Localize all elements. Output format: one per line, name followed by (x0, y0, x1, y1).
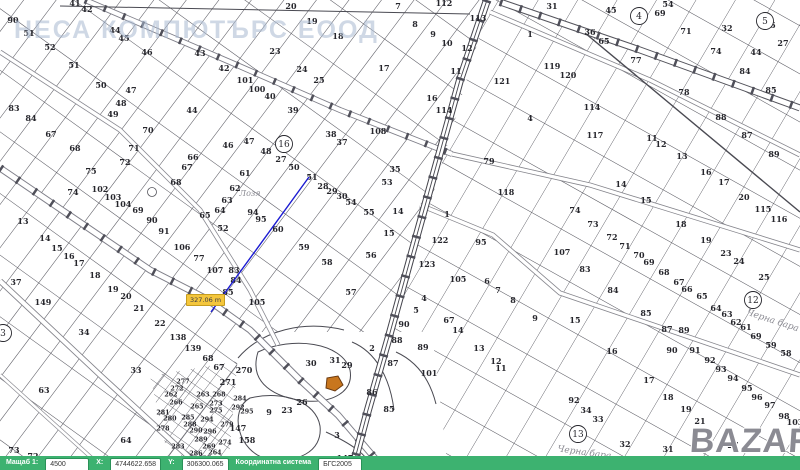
svg-text:15: 15 (640, 195, 651, 205)
svg-text:9: 9 (266, 407, 272, 417)
svg-text:274: 274 (218, 439, 232, 446)
svg-text:31: 31 (662, 444, 673, 454)
svg-text:12: 12 (747, 296, 758, 306)
svg-text:69: 69 (654, 8, 666, 18)
y-coordinate-label: Y: (168, 458, 174, 467)
svg-text:11: 11 (495, 363, 506, 373)
svg-text:47: 47 (243, 136, 254, 146)
svg-text:18: 18 (89, 270, 101, 280)
svg-text:15: 15 (569, 315, 580, 325)
svg-text:273: 273 (209, 400, 222, 407)
svg-text:71: 71 (619, 241, 630, 251)
svg-text:50: 50 (95, 80, 107, 90)
svg-text:67: 67 (181, 162, 192, 172)
crs-label: Координатна система (236, 458, 312, 467)
svg-text:49: 49 (107, 109, 119, 119)
x-coordinate-label: X: (96, 458, 103, 467)
svg-text:19: 19 (306, 16, 318, 26)
svg-text:5: 5 (413, 305, 419, 315)
svg-text:56: 56 (365, 250, 377, 260)
svg-text:20: 20 (120, 291, 132, 301)
svg-text:95: 95 (255, 214, 266, 224)
svg-text:17: 17 (73, 258, 84, 268)
svg-text:29: 29 (341, 360, 353, 370)
svg-text:92: 92 (704, 355, 715, 365)
svg-text:87: 87 (661, 324, 672, 334)
svg-text:14: 14 (452, 325, 464, 335)
svg-text:51: 51 (68, 60, 79, 70)
svg-text:59: 59 (765, 340, 777, 350)
svg-text:7: 7 (395, 1, 401, 11)
svg-text:37: 37 (336, 137, 347, 147)
svg-text:13: 13 (17, 216, 29, 226)
svg-text:68: 68 (202, 353, 214, 363)
svg-text:27: 27 (275, 154, 286, 164)
svg-text:83: 83 (8, 103, 20, 113)
svg-text:13: 13 (473, 343, 485, 353)
svg-text:78: 78 (678, 87, 690, 97)
svg-text:295: 295 (240, 408, 253, 415)
cadastral-map-viewer: 9051525150838441424445464748494342101100… (0, 0, 800, 470)
svg-text:262: 262 (164, 391, 177, 398)
svg-text:87: 87 (741, 130, 752, 140)
svg-text:85: 85 (383, 404, 394, 414)
svg-text:19: 19 (680, 404, 692, 414)
svg-text:37: 37 (10, 277, 21, 287)
svg-text:16: 16 (606, 346, 618, 356)
svg-text:114: 114 (436, 105, 453, 115)
svg-text:65: 65 (199, 210, 210, 220)
svg-text:97: 97 (764, 400, 775, 410)
svg-text:91: 91 (689, 345, 700, 355)
svg-text:100: 100 (249, 84, 266, 94)
svg-text:11: 11 (450, 66, 461, 76)
svg-text:18: 18 (662, 392, 674, 402)
map-canvas[interactable]: 9051525150838441424445464748494342101100… (0, 0, 800, 470)
svg-text:117: 117 (587, 130, 604, 140)
svg-text:4: 4 (527, 113, 533, 123)
svg-text:7: 7 (495, 285, 501, 295)
svg-text:158: 158 (239, 435, 256, 445)
svg-text:30: 30 (305, 358, 317, 368)
svg-text:52: 52 (217, 223, 228, 233)
svg-text:115: 115 (755, 204, 772, 214)
svg-text:44: 44 (750, 47, 762, 57)
svg-text:70: 70 (142, 125, 154, 135)
svg-text:58: 58 (780, 348, 792, 358)
svg-text:65: 65 (696, 291, 707, 301)
svg-text:66: 66 (187, 152, 199, 162)
svg-text:90: 90 (666, 345, 678, 355)
svg-text:118: 118 (498, 187, 515, 197)
svg-text:279: 279 (220, 421, 233, 428)
svg-text:12: 12 (655, 139, 666, 149)
svg-text:69: 69 (132, 205, 144, 215)
svg-text:64: 64 (214, 205, 226, 215)
svg-text:42: 42 (81, 4, 92, 14)
svg-text:50: 50 (288, 162, 300, 172)
svg-text:277: 277 (176, 378, 189, 385)
svg-text:68: 68 (658, 267, 670, 277)
y-coordinate-input[interactable]: 306300.065 (182, 458, 229, 470)
svg-text:114: 114 (584, 102, 601, 112)
svg-text:9: 9 (532, 313, 538, 323)
svg-text:139: 139 (185, 343, 202, 353)
svg-text:88: 88 (715, 112, 727, 122)
svg-text:72: 72 (119, 157, 130, 167)
svg-text:85: 85 (765, 85, 776, 95)
svg-text:71: 71 (128, 143, 139, 153)
svg-text:149: 149 (35, 297, 52, 307)
svg-text:55: 55 (363, 207, 374, 217)
svg-text:33: 33 (130, 365, 142, 375)
svg-text:43: 43 (194, 48, 206, 58)
svg-text:105: 105 (450, 274, 467, 284)
svg-text:23: 23 (281, 405, 293, 415)
svg-text:20: 20 (738, 192, 750, 202)
svg-text:75: 75 (85, 166, 96, 176)
svg-text:35: 35 (389, 164, 400, 174)
svg-text:88: 88 (391, 335, 403, 345)
svg-text:19: 19 (700, 235, 712, 245)
svg-text:67: 67 (213, 362, 224, 372)
svg-text:2: 2 (369, 343, 375, 353)
svg-text:119: 119 (544, 61, 561, 71)
svg-text:64: 64 (710, 303, 722, 313)
svg-text:63: 63 (221, 195, 233, 205)
svg-text:86: 86 (366, 387, 378, 397)
svg-text:107: 107 (207, 265, 224, 275)
svg-text:34: 34 (580, 405, 592, 415)
svg-text:1: 1 (527, 29, 533, 39)
svg-text:13: 13 (676, 151, 688, 161)
svg-text:68: 68 (170, 177, 182, 187)
svg-text:90: 90 (7, 15, 19, 25)
svg-text:20: 20 (285, 1, 297, 11)
svg-text:33: 33 (592, 414, 604, 424)
svg-text:79: 79 (483, 156, 495, 166)
svg-text:92: 92 (568, 395, 579, 405)
svg-text:22: 22 (154, 318, 165, 328)
svg-text:48: 48 (260, 146, 272, 156)
svg-text:123: 123 (419, 259, 436, 269)
svg-text:67: 67 (443, 315, 454, 325)
svg-text:77: 77 (193, 253, 204, 263)
svg-text:10: 10 (441, 38, 453, 48)
svg-text:105: 105 (249, 297, 266, 307)
svg-text:5: 5 (762, 17, 768, 27)
svg-text:84: 84 (739, 66, 751, 76)
svg-text:44: 44 (186, 105, 198, 115)
svg-text:12: 12 (461, 43, 472, 53)
svg-text:116: 116 (771, 214, 788, 224)
svg-text:280: 280 (163, 415, 177, 422)
svg-text:106: 106 (174, 242, 191, 252)
svg-text:23: 23 (720, 248, 732, 258)
svg-text:113: 113 (470, 13, 487, 23)
svg-text:45: 45 (118, 33, 129, 43)
svg-text:31: 31 (329, 355, 340, 365)
svg-text:84: 84 (607, 285, 619, 295)
svg-text:74: 74 (710, 46, 722, 56)
svg-text:25: 25 (313, 75, 324, 85)
svg-text:138: 138 (170, 332, 187, 342)
svg-text:263: 263 (196, 391, 209, 398)
svg-text:77: 77 (630, 55, 641, 65)
svg-text:59: 59 (298, 242, 310, 252)
svg-text:54: 54 (345, 197, 357, 207)
svg-text:24: 24 (733, 256, 745, 266)
svg-text:89: 89 (678, 325, 690, 335)
svg-text:14: 14 (392, 206, 404, 216)
svg-text:15: 15 (51, 243, 62, 253)
measurement-distance-label: 327.06 m (186, 294, 225, 306)
svg-text:84: 84 (25, 113, 37, 123)
svg-text:71: 71 (680, 26, 691, 36)
svg-text:67: 67 (45, 129, 56, 139)
svg-text:66: 66 (681, 284, 693, 294)
svg-text:121: 121 (494, 76, 511, 86)
svg-text:34: 34 (78, 327, 90, 337)
svg-text:93: 93 (715, 364, 727, 374)
svg-text:27: 27 (777, 38, 788, 48)
scale-label: Мащаб 1: (6, 458, 38, 467)
svg-text:3: 3 (334, 430, 340, 440)
svg-text:268: 268 (212, 391, 226, 398)
svg-text:51: 51 (306, 172, 317, 182)
svg-text:90: 90 (146, 215, 158, 225)
map-status-bar: Мащаб 1: 4500 X: 4744622.658 Y: 306300.0… (0, 456, 800, 470)
svg-text:57: 57 (345, 287, 356, 297)
svg-text:275: 275 (209, 407, 222, 414)
svg-text:74: 74 (569, 205, 581, 215)
svg-text:4: 4 (421, 293, 427, 303)
svg-text:14: 14 (615, 179, 627, 189)
svg-text:85: 85 (640, 308, 651, 318)
svg-text:32: 32 (619, 439, 630, 449)
svg-text:46: 46 (141, 47, 153, 57)
svg-text:9: 9 (430, 29, 436, 39)
svg-text:94: 94 (727, 373, 739, 383)
svg-text:289: 289 (194, 436, 207, 443)
svg-text:42: 42 (218, 63, 229, 73)
svg-text:101: 101 (421, 368, 438, 378)
svg-text:23: 23 (269, 46, 281, 56)
svg-text:38: 38 (325, 129, 337, 139)
svg-text:45: 45 (605, 5, 616, 15)
svg-text:91: 91 (158, 226, 169, 236)
svg-text:90: 90 (398, 319, 410, 329)
svg-text:61: 61 (239, 168, 250, 178)
svg-text:15: 15 (383, 228, 394, 238)
svg-text:271: 271 (220, 377, 237, 387)
svg-text:32: 32 (721, 23, 732, 33)
svg-text:284: 284 (233, 395, 247, 402)
svg-text:290: 290 (189, 427, 203, 434)
x-coordinate-input[interactable]: 4744622.658 (110, 458, 161, 470)
svg-text:58: 58 (321, 257, 333, 267)
svg-text:65: 65 (598, 36, 609, 46)
svg-text:120: 120 (560, 70, 577, 80)
svg-text:87: 87 (387, 358, 398, 368)
svg-text:108: 108 (370, 126, 387, 136)
svg-text:1: 1 (444, 209, 450, 219)
svg-text:73: 73 (8, 445, 20, 455)
svg-text:73: 73 (587, 219, 599, 229)
svg-text:16: 16 (426, 93, 438, 103)
svg-text:53: 53 (381, 177, 393, 187)
svg-text:Лозя: Лозя (238, 189, 260, 198)
svg-text:19: 19 (107, 284, 119, 294)
svg-text:270: 270 (236, 365, 253, 375)
svg-text:54: 54 (662, 0, 674, 9)
svg-text:8: 8 (510, 295, 516, 305)
svg-text:278: 278 (156, 425, 170, 432)
svg-text:69: 69 (643, 257, 655, 267)
svg-text:18: 18 (675, 219, 687, 229)
svg-text:21: 21 (133, 303, 144, 313)
svg-text:52: 52 (44, 42, 55, 52)
svg-text:64: 64 (120, 435, 132, 445)
svg-text:31: 31 (546, 1, 557, 11)
svg-text:18: 18 (332, 31, 344, 41)
svg-text:14: 14 (39, 233, 51, 243)
svg-text:6: 6 (484, 276, 490, 286)
svg-text:283: 283 (171, 443, 184, 450)
svg-text:46: 46 (222, 140, 234, 150)
svg-text:47: 47 (125, 85, 136, 95)
svg-text:25: 25 (758, 272, 769, 282)
svg-text:17: 17 (643, 375, 654, 385)
scale-input[interactable]: 4500 (45, 458, 89, 470)
svg-text:26: 26 (296, 397, 308, 407)
svg-text:48: 48 (115, 98, 127, 108)
svg-text:63: 63 (38, 385, 50, 395)
svg-text:89: 89 (768, 149, 780, 159)
svg-text:24: 24 (296, 64, 308, 74)
svg-text:68: 68 (69, 143, 81, 153)
svg-text:294: 294 (200, 416, 214, 423)
svg-text:89: 89 (417, 342, 429, 352)
svg-text:17: 17 (378, 63, 389, 73)
svg-text:74: 74 (67, 187, 79, 197)
svg-text:41: 41 (69, 0, 80, 8)
svg-text:266: 266 (169, 399, 183, 406)
svg-text:96: 96 (751, 392, 763, 402)
svg-text:8: 8 (412, 19, 418, 29)
svg-text:40: 40 (264, 91, 276, 101)
svg-text:122: 122 (432, 235, 449, 245)
svg-text:95: 95 (475, 237, 486, 247)
svg-text:107: 107 (554, 247, 571, 257)
svg-text:51: 51 (23, 28, 34, 38)
crs-select[interactable]: БГС2005 (318, 458, 362, 470)
svg-text:69: 69 (750, 331, 762, 341)
svg-text:36: 36 (584, 27, 596, 37)
svg-text:112: 112 (436, 0, 453, 8)
svg-text:4: 4 (636, 12, 642, 22)
svg-text:13: 13 (572, 430, 584, 440)
svg-text:265: 265 (190, 403, 203, 410)
svg-text:3: 3 (0, 329, 6, 339)
svg-text:285: 285 (181, 414, 194, 421)
svg-text:72: 72 (606, 232, 617, 242)
svg-text:16: 16 (700, 167, 712, 177)
svg-text:16: 16 (278, 140, 290, 150)
svg-text:39: 39 (287, 105, 299, 115)
svg-text:296: 296 (203, 428, 217, 435)
svg-text:83: 83 (579, 264, 591, 274)
svg-text:104: 104 (115, 199, 132, 209)
svg-text:17: 17 (718, 177, 729, 187)
